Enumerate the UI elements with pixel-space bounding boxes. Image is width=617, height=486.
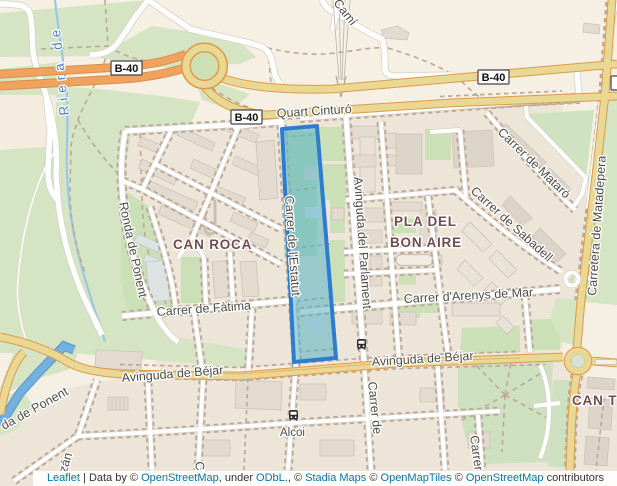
svg-text:B-40: B-40 [115,63,139,75]
svg-text:Alcoi: Alcoi [280,427,305,439]
svg-text:B-40: B-40 [482,72,506,84]
svg-text:PLA DEL: PLA DEL [394,214,457,229]
svg-text:BON AIRE: BON AIRE [390,235,462,250]
svg-text:CAN T: CAN T [572,393,617,408]
svg-text:B-40: B-40 [235,112,259,124]
svg-text:CAN ROCA: CAN ROCA [173,237,252,252]
